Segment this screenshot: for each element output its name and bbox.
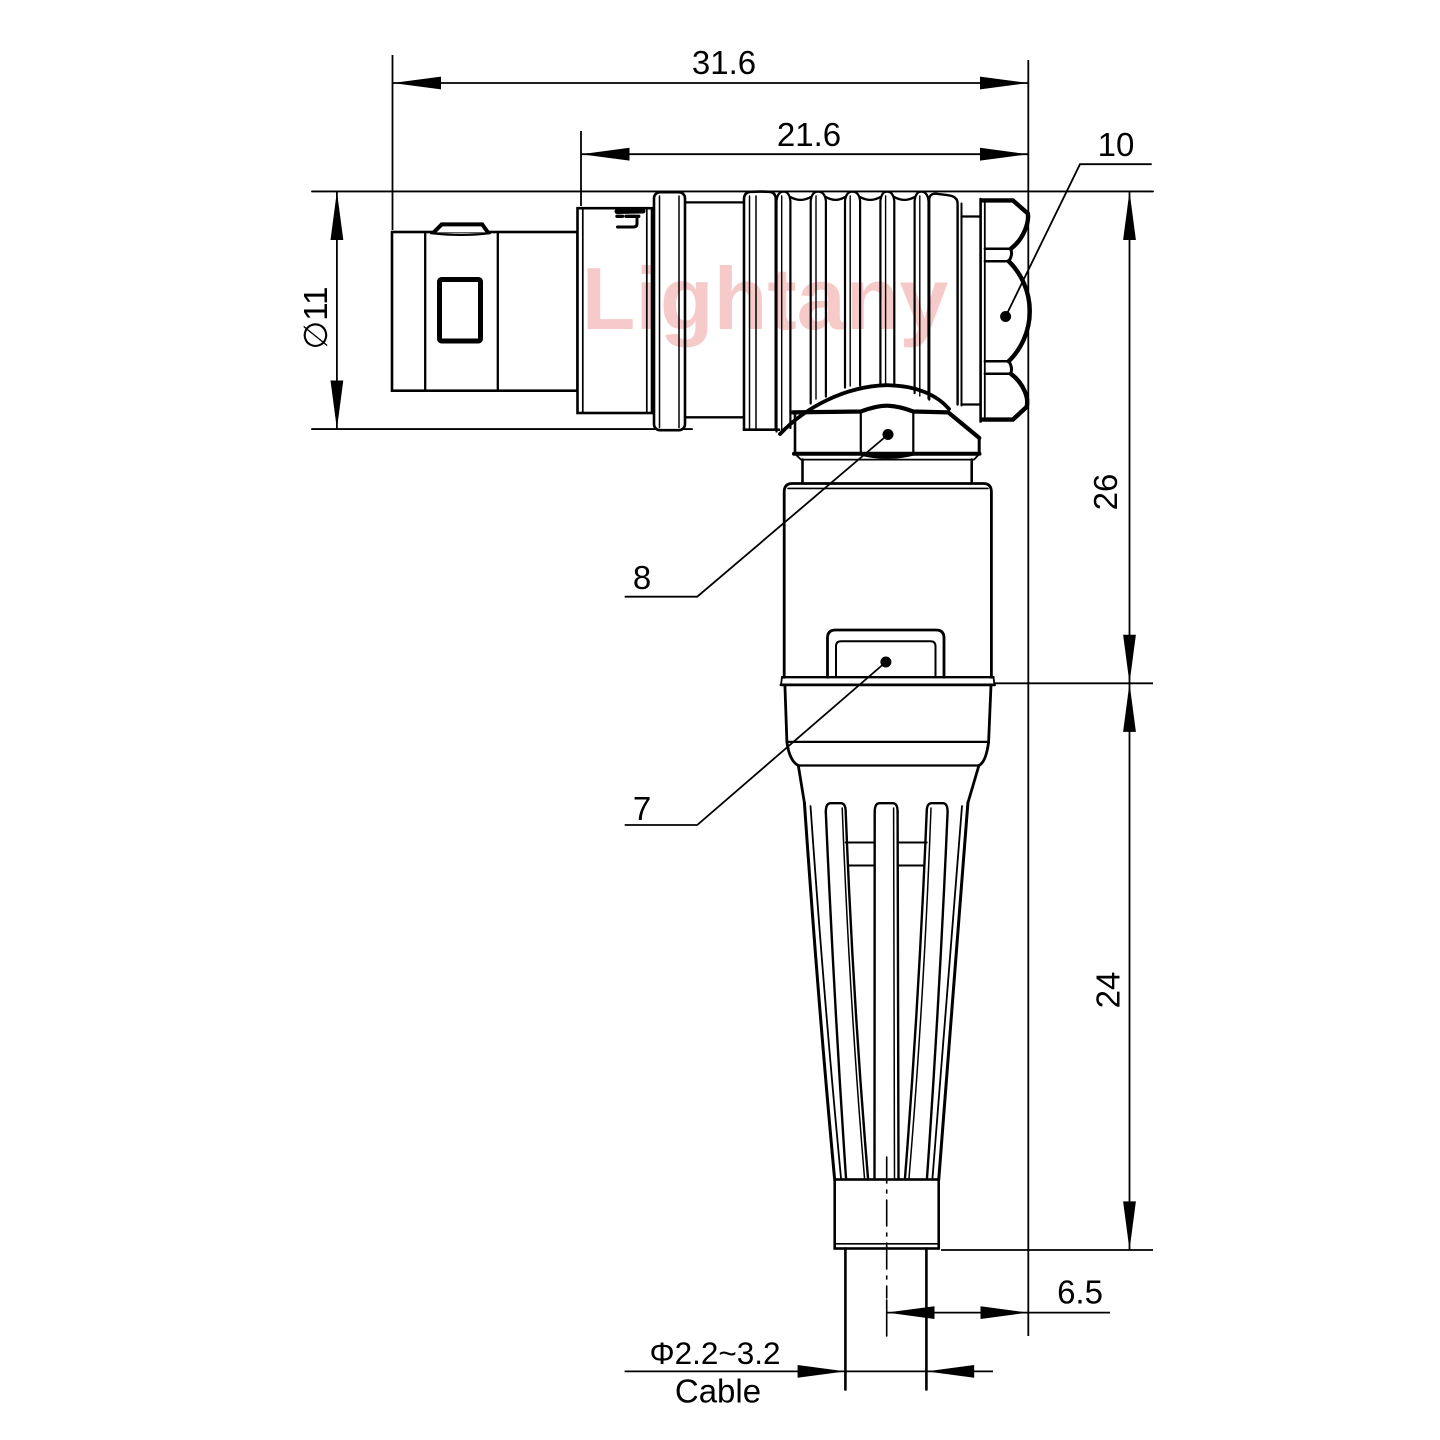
svg-text:Cable: Cable [675,1373,761,1410]
svg-text:Lightany: Lightany [582,249,949,348]
svg-text:24: 24 [1090,972,1127,1009]
svg-text:10: 10 [1098,126,1135,163]
svg-text:7: 7 [633,790,651,827]
svg-text:∅11: ∅11 [297,286,334,349]
svg-text:21.6: 21.6 [777,116,841,153]
svg-text:26: 26 [1087,474,1124,511]
svg-text:6.5: 6.5 [1057,1274,1103,1311]
svg-text:31.6: 31.6 [692,44,756,81]
svg-text:Φ2.2~3.2: Φ2.2~3.2 [649,1335,780,1371]
svg-text:8: 8 [633,559,651,596]
